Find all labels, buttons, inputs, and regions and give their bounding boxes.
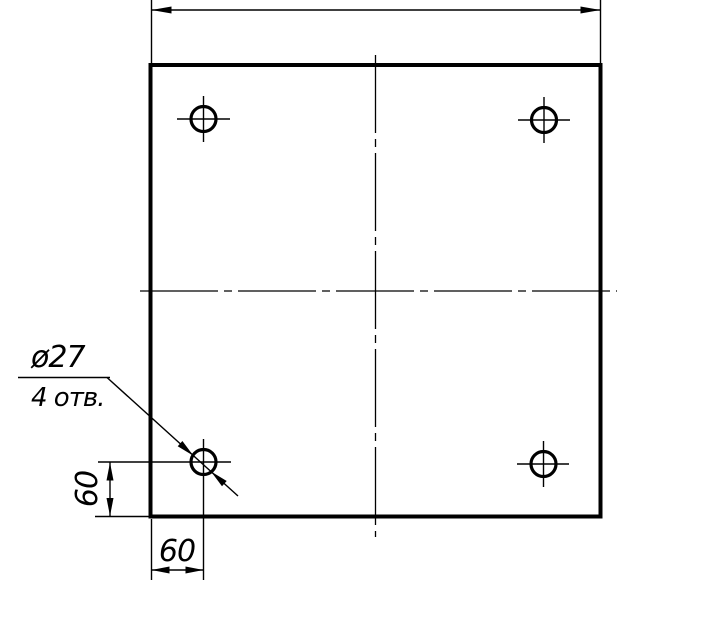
dimension-value-bottom: 60: [159, 534, 195, 569]
dimension-value-left: 60: [70, 471, 105, 507]
callout-diameter-label: ø27: [30, 340, 85, 375]
callout-count-label: 4 отв.: [31, 383, 104, 413]
hole-top-right: [518, 97, 570, 143]
top-dimension: [152, 0, 601, 63]
arrowhead-left-icon: [152, 7, 172, 14]
left-dimension: 60: [70, 462, 150, 517]
arrowhead-up-icon: [107, 463, 114, 481]
arrowhead-right-icon: [581, 7, 601, 14]
bottom-dimension: 60: [152, 519, 204, 580]
drawing-sheet: ø27 4 отв. 60 60: [0, 0, 713, 631]
hole-top-left: [177, 96, 230, 142]
drawing-canvas: ø27 4 отв. 60 60: [0, 0, 713, 631]
hole-bottom-right: [517, 441, 569, 487]
hole-callout: ø27 4 отв.: [18, 340, 238, 496]
arrowhead-down-icon: [107, 498, 114, 516]
